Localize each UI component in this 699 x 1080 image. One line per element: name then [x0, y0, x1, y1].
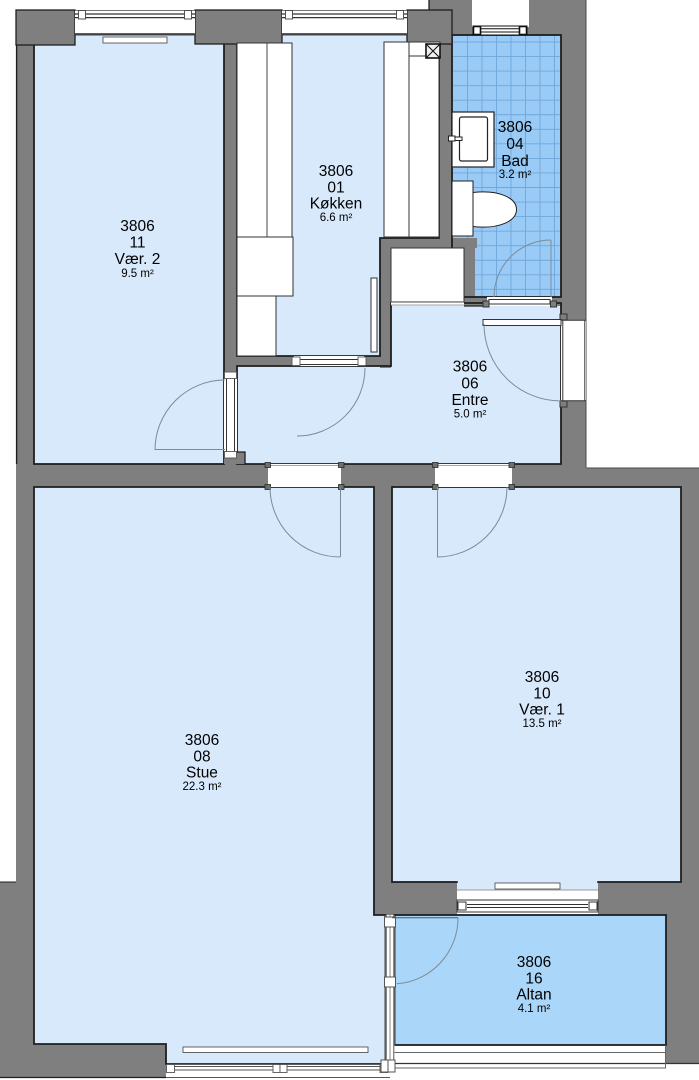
svg-text:11: 11: [129, 235, 145, 252]
svg-text:3806: 3806: [525, 669, 559, 686]
svg-text:Entre: Entre: [451, 392, 488, 409]
svg-text:Stue: Stue: [186, 765, 218, 782]
svg-text:04: 04: [506, 136, 524, 153]
svg-text:06: 06: [461, 376, 478, 393]
svg-text:6.6 m²: 6.6 m²: [320, 212, 353, 224]
svg-text:16: 16: [525, 971, 542, 988]
svg-text:08: 08: [193, 749, 210, 766]
svg-text:Køkken: Køkken: [310, 196, 363, 213]
svg-text:3806: 3806: [517, 954, 551, 971]
svg-text:3806: 3806: [319, 163, 353, 180]
svg-text:Altan: Altan: [516, 987, 551, 1004]
svg-text:3806: 3806: [120, 218, 154, 235]
svg-text:5.0 m²: 5.0 m²: [454, 409, 487, 421]
svg-text:Vær. 1: Vær. 1: [519, 702, 565, 719]
svg-text:9.5 m²: 9.5 m²: [121, 268, 154, 280]
svg-text:13.5 m²: 13.5 m²: [523, 718, 562, 730]
svg-text:01: 01: [327, 180, 344, 197]
svg-text:22.3 m²: 22.3 m²: [183, 781, 222, 793]
svg-text:Bad: Bad: [501, 153, 529, 170]
svg-text:4.1 m²: 4.1 m²: [518, 1003, 551, 1015]
svg-text:3806: 3806: [498, 119, 532, 136]
svg-text:3806: 3806: [453, 359, 487, 376]
svg-text:3806: 3806: [185, 732, 219, 749]
svg-text:Vær. 2: Vær. 2: [115, 251, 161, 268]
svg-text:3.2 m²: 3.2 m²: [499, 169, 532, 181]
svg-text:10: 10: [533, 686, 551, 703]
